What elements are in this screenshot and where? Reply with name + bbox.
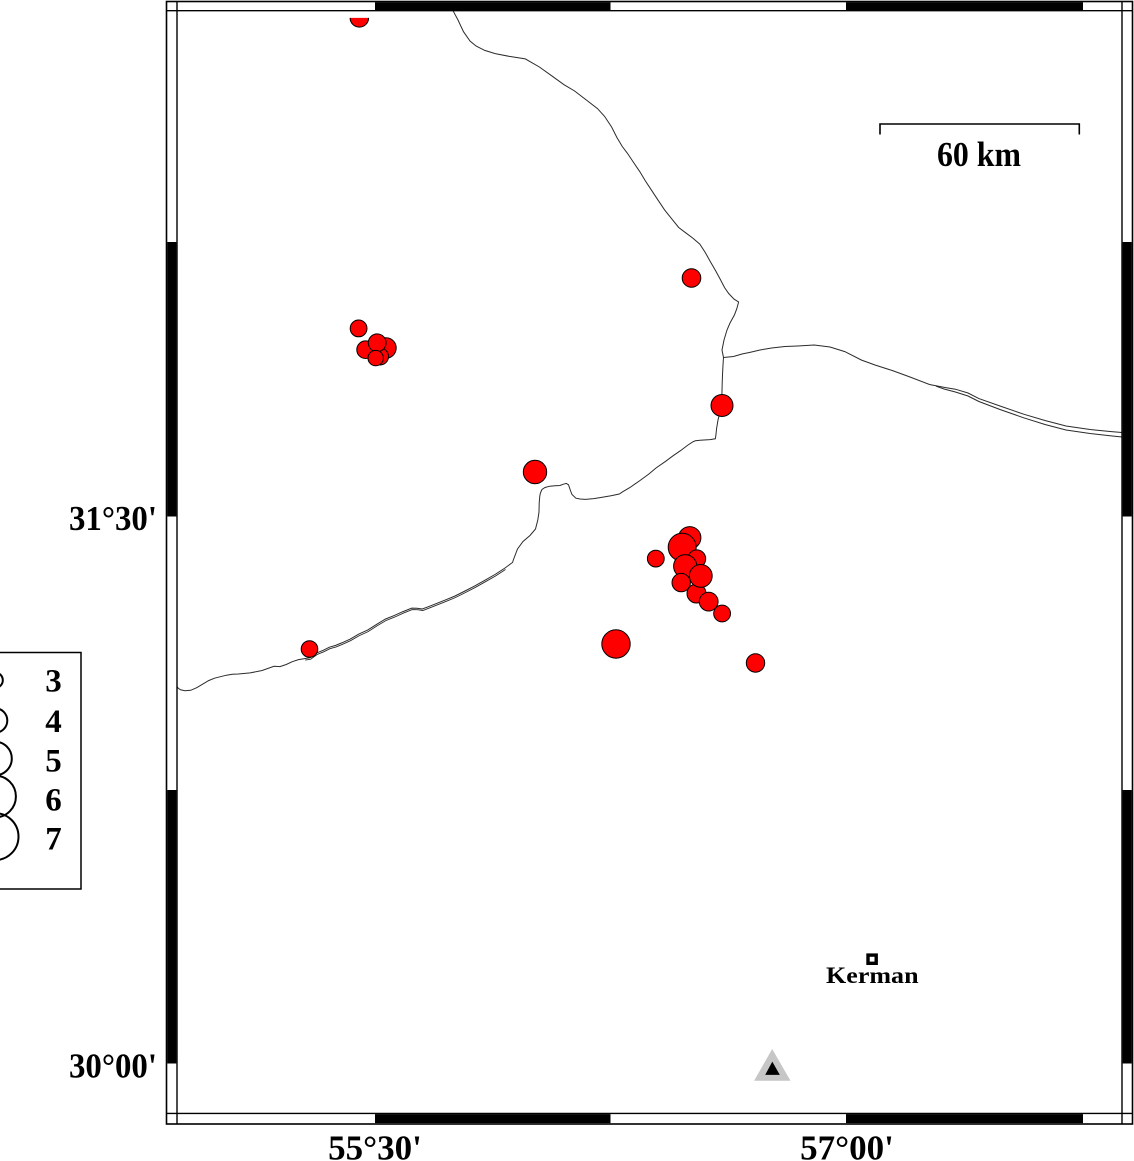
svg-text:57°00': 57°00' [800, 1129, 894, 1161]
svg-text:31°30': 31°30' [69, 499, 157, 538]
svg-text:3: 3 [45, 664, 62, 700]
svg-text:Kerman: Kerman [826, 963, 919, 989]
svg-text:7: 7 [45, 821, 62, 857]
svg-text:60 km: 60 km [937, 136, 1021, 174]
svg-text:6: 6 [45, 783, 62, 819]
svg-text:55°30': 55°30' [328, 1129, 422, 1161]
svg-text:30°00': 30°00' [69, 1047, 157, 1086]
svg-text:4: 4 [45, 704, 62, 740]
svg-text:5: 5 [45, 744, 62, 780]
